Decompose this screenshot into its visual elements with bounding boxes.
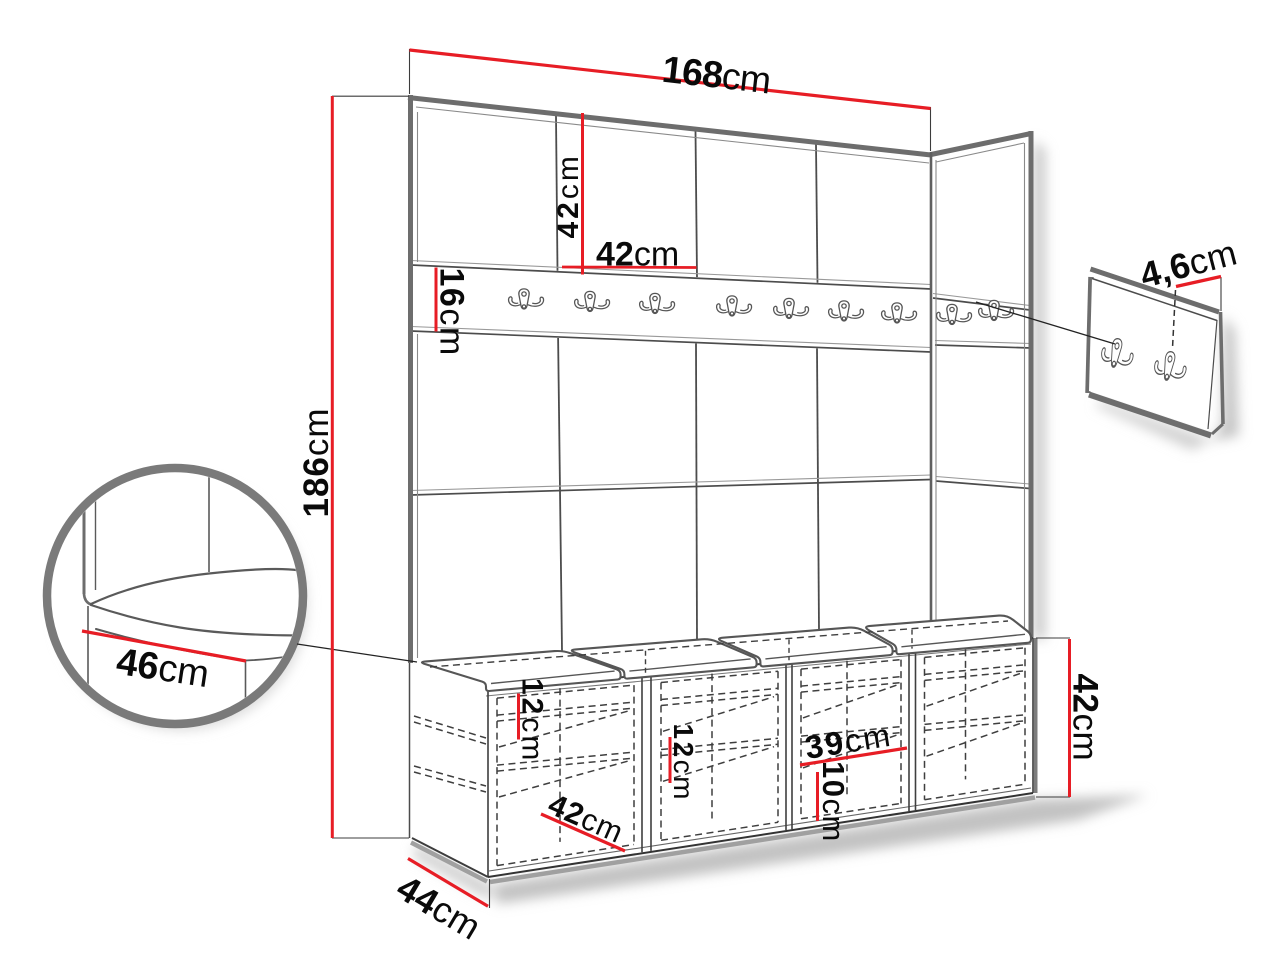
svg-text:42cm: 42cm xyxy=(1066,674,1105,762)
svg-text:12cm: 12cm xyxy=(668,724,699,802)
svg-text:42cm: 42cm xyxy=(596,236,679,274)
svg-text:12cm: 12cm xyxy=(516,678,549,763)
svg-text:10cm: 10cm xyxy=(816,761,851,843)
svg-text:186cm: 186cm xyxy=(297,407,336,517)
svg-text:42cm: 42cm xyxy=(552,153,585,238)
svg-text:16cm: 16cm xyxy=(433,268,471,357)
